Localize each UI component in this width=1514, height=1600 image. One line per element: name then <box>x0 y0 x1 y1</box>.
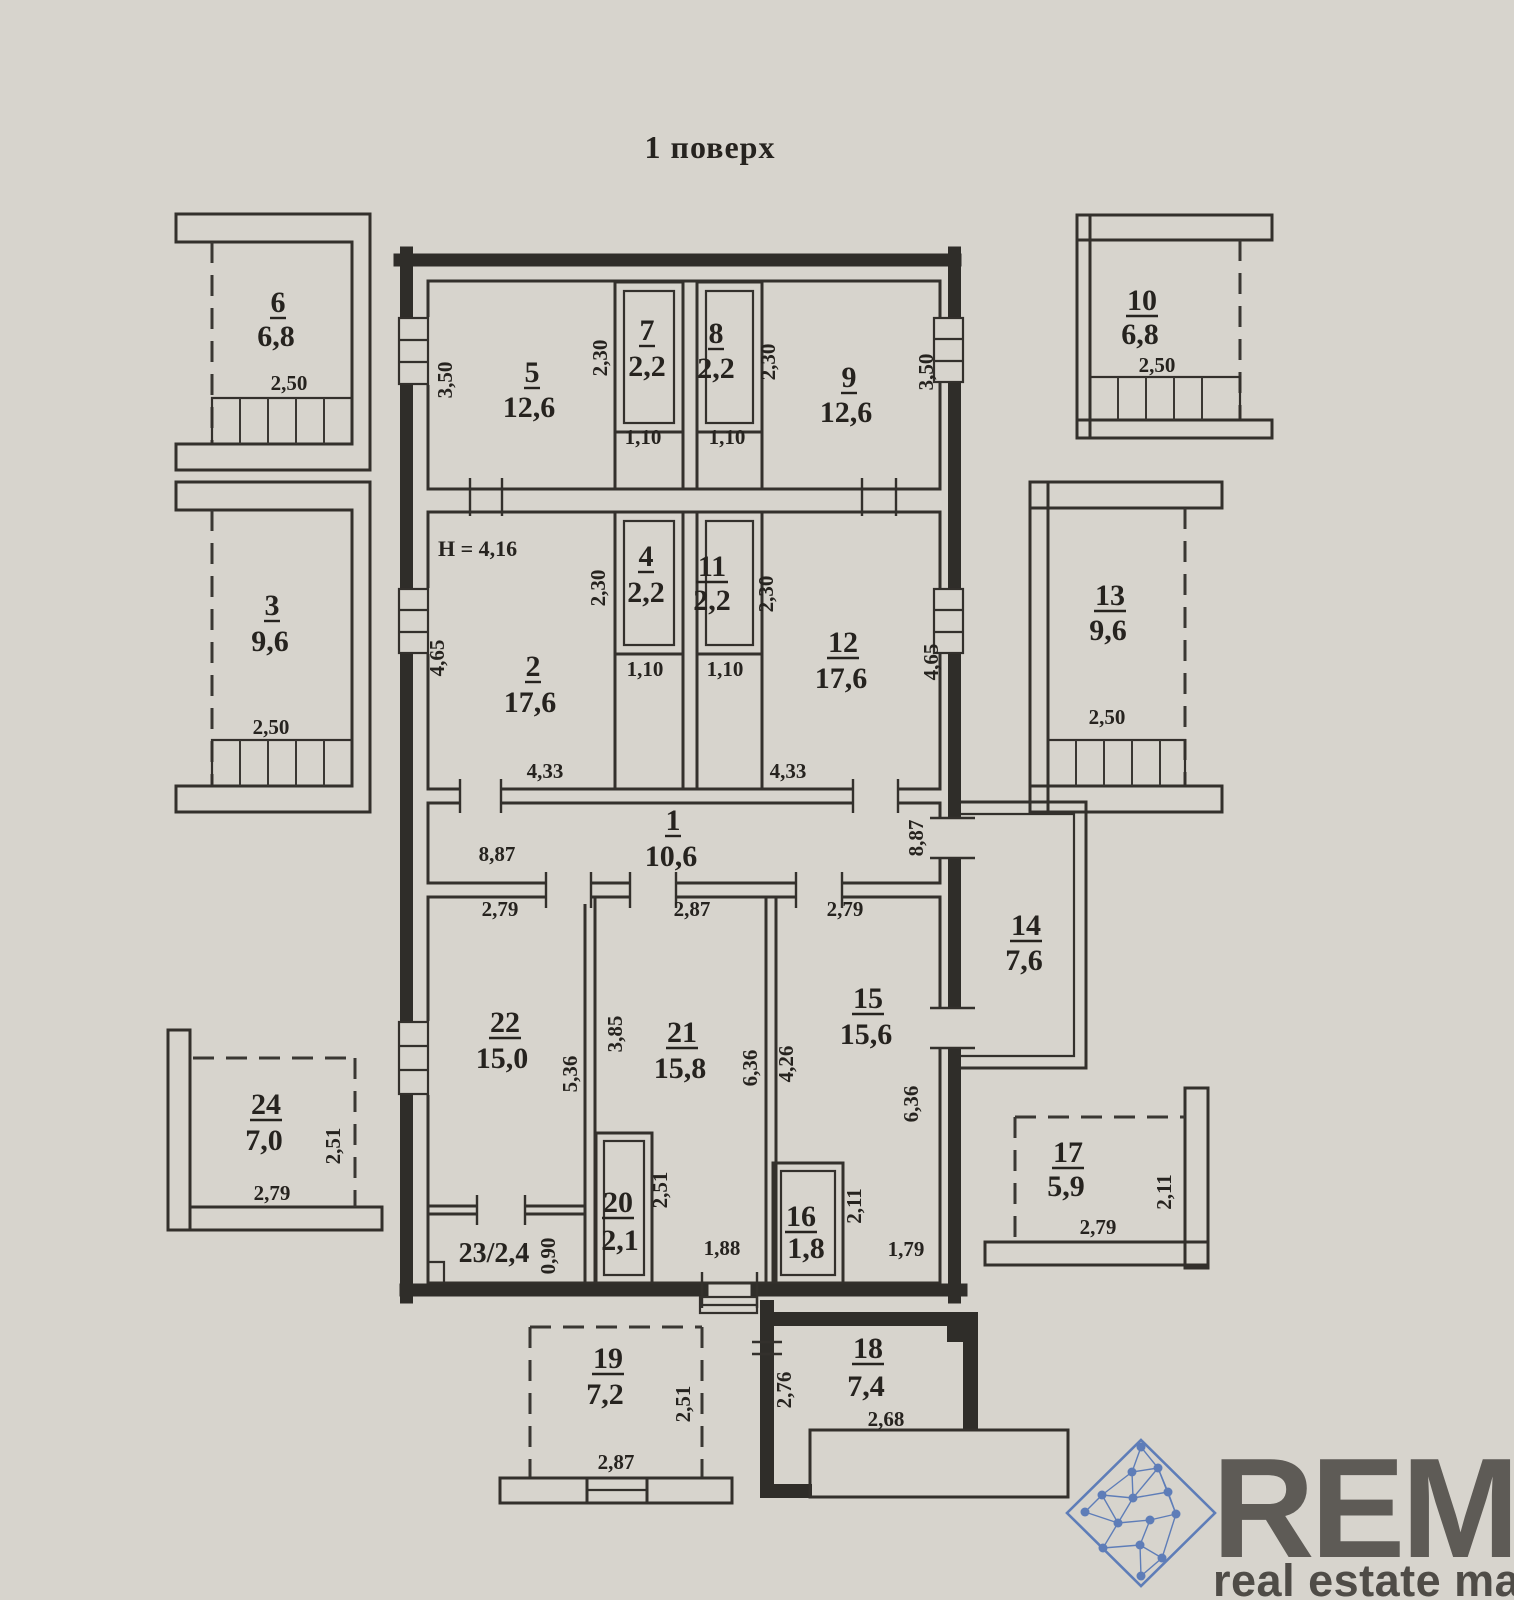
dim-090-room23: 0,90 <box>536 1238 560 1275</box>
room-21-area: 15,8 <box>654 1052 707 1085</box>
scanned-floor-plan-page: 1 поверх <box>0 0 1514 1600</box>
paper-background <box>0 0 1514 1600</box>
dim-426-room15: 4,26 <box>774 1046 798 1083</box>
dim-279-balc24: 2,79 <box>254 1181 291 1205</box>
room-23-label: 23/2,4 <box>459 1238 530 1269</box>
room-2-number: 2 <box>526 650 541 683</box>
dim-230-room8: 2,30 <box>756 344 780 381</box>
dim-268-room18: 2,68 <box>868 1407 905 1431</box>
room-5-area: 12,6 <box>503 391 556 424</box>
dim-350-left: 3,50 <box>433 362 457 399</box>
dim-287-balc19: 2,87 <box>598 1450 635 1474</box>
room-22-area: 15,0 <box>476 1042 529 1075</box>
room-4-area: 2,2 <box>627 576 665 609</box>
dim-536-room22: 5,36 <box>558 1056 582 1093</box>
room-5-number: 5 <box>525 356 540 389</box>
dim-211-room16: 2,11 <box>842 1188 866 1224</box>
dim-279-balc17: 2,79 <box>1080 1215 1117 1239</box>
room-2-area: 17,6 <box>504 686 557 719</box>
dim-276-room18: 2,76 <box>772 1372 796 1409</box>
room-20-number: 20 <box>603 1186 633 1219</box>
room-18-area: 7,4 <box>847 1370 885 1403</box>
dim-887-corridor: 8,87 <box>479 842 516 866</box>
room-1-number: 1 <box>666 804 681 837</box>
watermark-tagline-text: real estate map <box>1213 1555 1514 1600</box>
room-3-number: 3 <box>265 589 280 622</box>
dim-188-room21: 1,88 <box>704 1236 741 1260</box>
room-20-area: 2,1 <box>601 1224 639 1257</box>
room-10-area: 6,8 <box>1121 318 1159 351</box>
dim-110-room11: 1,10 <box>707 657 744 681</box>
floor-plan-drawing: 1 поверх <box>0 0 1514 1600</box>
dim-110-room8: 1,10 <box>709 425 746 449</box>
room-12-number: 12 <box>828 626 858 659</box>
dim-433-room2: 4,33 <box>527 759 564 783</box>
dim-110-room7: 1,10 <box>625 425 662 449</box>
room-3-area: 9,6 <box>251 625 289 658</box>
room-11-number: 11 <box>698 550 726 583</box>
height-note: H = 4,16 <box>438 536 517 561</box>
room-16-area: 1,8 <box>787 1232 825 1265</box>
dim-251-room20: 2,51 <box>648 1172 672 1209</box>
dim-887-corridor-v: 8,87 <box>904 820 928 857</box>
room-13-area: 9,6 <box>1089 614 1127 647</box>
window-room22 <box>397 1021 430 1095</box>
room-13-number: 13 <box>1095 579 1125 612</box>
room-9-area: 12,6 <box>820 396 873 429</box>
dim-287-room21: 2,87 <box>674 897 711 921</box>
room-1-area: 10,6 <box>645 840 698 873</box>
dim-250-balc3: 2,50 <box>253 715 290 739</box>
dim-179-room15: 1,79 <box>888 1237 925 1261</box>
room-9-number: 9 <box>842 361 857 394</box>
room-14-area: 7,6 <box>1005 944 1043 977</box>
room-4-number: 4 <box>639 540 654 573</box>
dim-350-right: 3,50 <box>914 354 938 391</box>
room-24-area: 7,0 <box>245 1124 283 1157</box>
dim-230-room11: 2,30 <box>754 576 778 613</box>
dim-465-left: 4,65 <box>425 640 449 677</box>
dim-230-room4: 2,30 <box>586 570 610 607</box>
room-12-area: 17,6 <box>815 662 868 695</box>
dim-250-balc6: 2,50 <box>271 371 308 395</box>
dim-636-room15: 6,36 <box>899 1086 923 1123</box>
room-19-area: 7,2 <box>586 1378 624 1411</box>
room-10-number: 10 <box>1127 284 1157 317</box>
window-room5 <box>397 317 430 385</box>
dim-279-room22: 2,79 <box>482 897 519 921</box>
dim-433-room12: 4,33 <box>770 759 807 783</box>
room-22-number: 22 <box>490 1006 520 1039</box>
room-19-number: 19 <box>593 1342 623 1375</box>
room-8-area: 2,2 <box>697 352 735 385</box>
dim-251-balc24: 2,51 <box>321 1128 345 1165</box>
page-title: 1 поверх <box>645 129 776 165</box>
dim-251-balc19: 2,51 <box>671 1386 695 1423</box>
dim-110-room4: 1,10 <box>627 657 664 681</box>
room-17-area: 5,9 <box>1047 1170 1085 1203</box>
dim-250-balc13: 2,50 <box>1089 705 1126 729</box>
room-7-number: 7 <box>640 314 655 347</box>
room-24-number: 24 <box>251 1088 281 1121</box>
room-21-number: 21 <box>667 1016 697 1049</box>
dim-385-room21: 3,85 <box>603 1016 627 1053</box>
room-8-number: 8 <box>709 317 724 350</box>
dim-250-balc10: 2,50 <box>1139 353 1176 377</box>
room-6-area: 6,8 <box>257 320 295 353</box>
room-15-number: 15 <box>853 982 883 1015</box>
room-7-area: 2,2 <box>628 350 666 383</box>
room-15-area: 15,6 <box>840 1018 893 1051</box>
room-6-number: 6 <box>271 286 286 319</box>
room-11-area: 2,2 <box>693 584 731 617</box>
room-18-number: 18 <box>853 1332 883 1365</box>
dim-636-room21: 6,36 <box>738 1050 762 1087</box>
room-16-number: 16 <box>786 1200 816 1233</box>
dim-279-room15: 2,79 <box>827 897 864 921</box>
dim-465-right: 4,65 <box>919 644 943 681</box>
dim-230-room7: 2,30 <box>588 340 612 377</box>
dim-211-balc17: 2,11 <box>1152 1174 1176 1210</box>
room-17-number: 17 <box>1053 1136 1083 1169</box>
room-14-number: 14 <box>1011 909 1041 942</box>
